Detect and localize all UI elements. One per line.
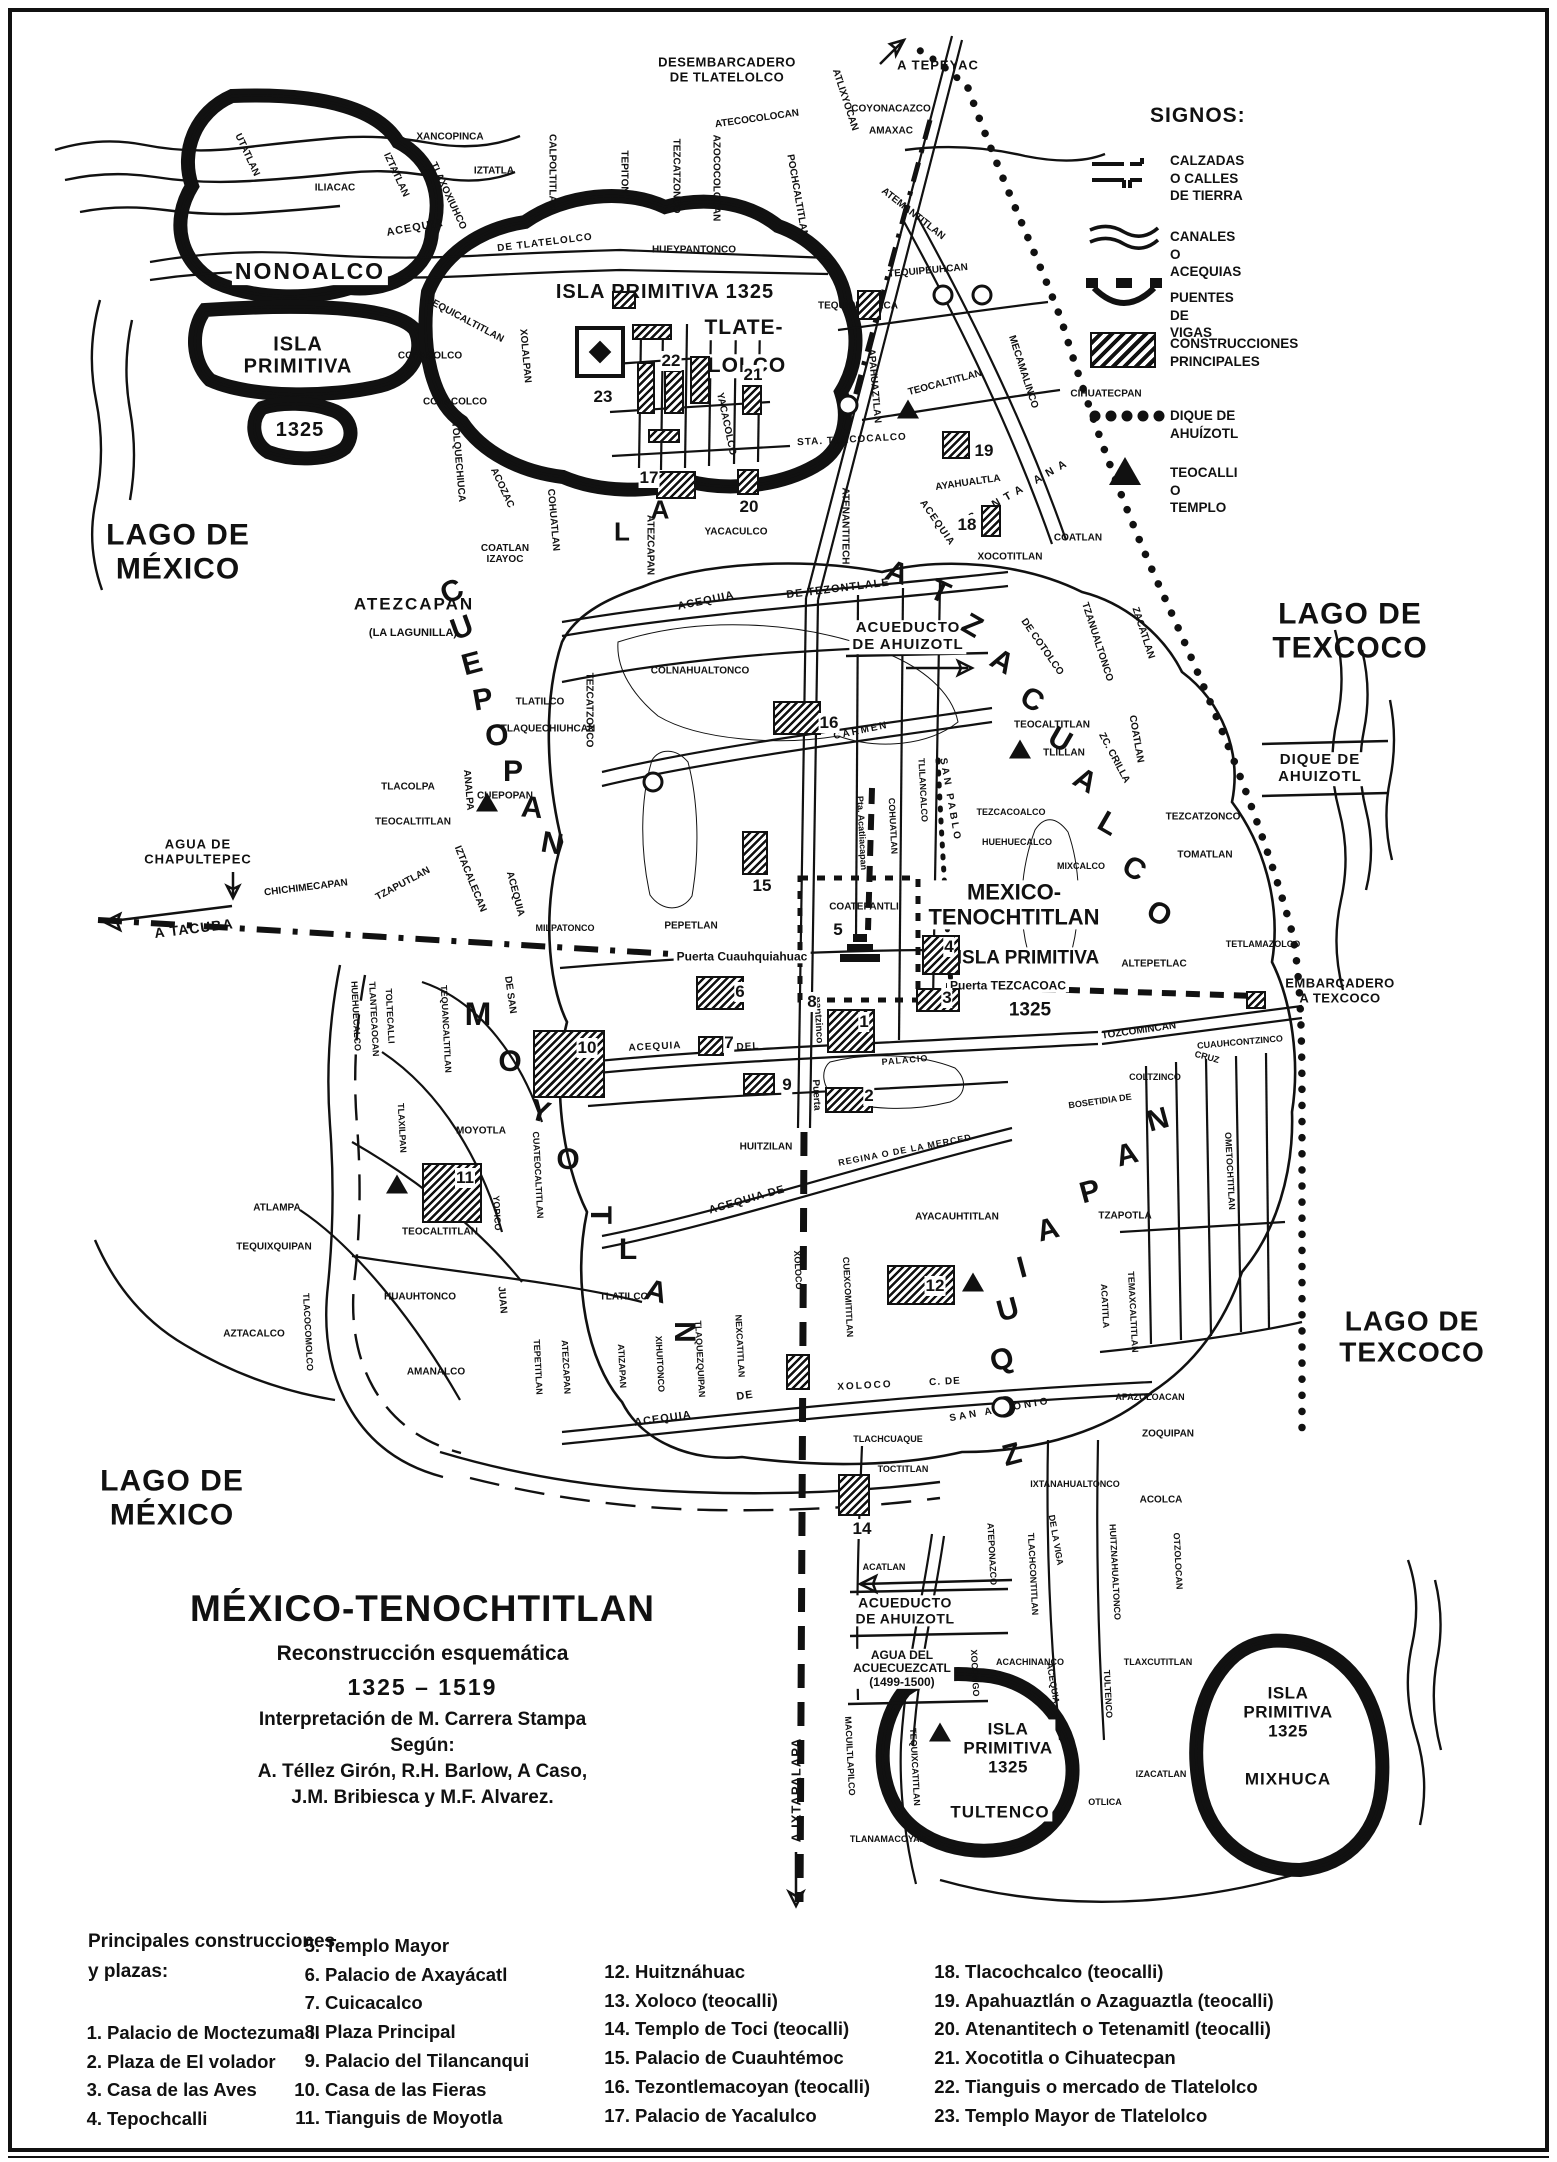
building-number: 14 — [852, 1519, 873, 1539]
construction-legend-label: Palacio de Cuauhtémoc — [635, 2047, 844, 2068]
building-number: 3 — [941, 988, 952, 1008]
circle-marker — [838, 395, 859, 416]
construction-legend-item: 22.Tianguis o mercado de Tlatelolco — [930, 2076, 1258, 2098]
building-number: 8 — [806, 992, 817, 1012]
map-page: A TEPEYACDESEMBARCADERO DE TLATELOLCOATE… — [0, 0, 1557, 2162]
construction-legend-label: Palacio de Moctezuma II — [107, 2022, 320, 2043]
construction-legend-number: 11. — [290, 2107, 320, 2129]
building-number: 15 — [752, 876, 773, 896]
legend-title: SIGNOS: — [1150, 104, 1246, 128]
building-marker — [698, 1036, 724, 1056]
construction-legend-label: Atenantitech o Tetenamitl (teocalli) — [965, 2018, 1271, 2039]
construcciones-icon — [1090, 332, 1156, 368]
construction-legend-item: 5.Templo Mayor — [290, 1935, 449, 1957]
building-marker — [742, 385, 762, 415]
circle-marker — [933, 285, 954, 306]
teocalli-icon — [962, 1273, 984, 1292]
building-marker — [916, 988, 960, 1012]
construction-legend-number: 13. — [600, 1990, 630, 2012]
legend-item-label: TEOCALLI O TEMPLO — [1170, 464, 1238, 517]
building-number: 1 — [858, 1012, 869, 1032]
construction-legend-number: 6. — [290, 1964, 320, 1986]
construction-legend-item: 2.Plaza de El volador — [72, 2051, 276, 2073]
construction-legend-label: Tianguis de Moyotla — [325, 2107, 502, 2128]
teocalli-icon — [929, 1723, 951, 1742]
pyramid-step — [840, 954, 880, 962]
map-subtitle: Reconstrucción esquemática — [150, 1642, 695, 1666]
legend-item-label: DIQUE DE AHUÍZOTL — [1170, 407, 1238, 442]
map-dates: 1325 – 1519 — [150, 1674, 695, 1701]
legend-item-label: CANALES O ACEQUIAS — [1170, 228, 1241, 281]
construction-legend-label: Plaza Principal — [325, 2021, 456, 2042]
legend-item-label: PUENTES DE VIGAS — [1170, 289, 1234, 342]
construction-legend-label: Tezontlemacoyan (teocalli) — [635, 2076, 870, 2097]
construction-legend-item: 19.Apahuaztlán o Azaguaztla (teocalli) — [930, 1990, 1274, 2012]
construction-legend-number: 18. — [930, 1961, 960, 1983]
construction-legend-item: 10.Casa de las Fieras — [290, 2079, 486, 2101]
construction-legend-item: 21.Xocotitla o Cihuatecpan — [930, 2047, 1176, 2069]
building-number: 21 — [743, 365, 764, 385]
building-number: 18 — [957, 515, 978, 535]
map-segun: Según: — [150, 1735, 695, 1757]
construction-legend-number: 14. — [600, 2018, 630, 2040]
construction-legend-number: 8. — [290, 2021, 320, 2043]
construction-legend-item: 20.Atenantitech o Tetenamitl (teocalli) — [930, 2018, 1271, 2040]
building-marker — [786, 1354, 810, 1390]
pyramid-step — [847, 944, 873, 952]
tlatelolco-temple-icon — [575, 326, 625, 378]
building-marker — [656, 471, 696, 499]
construction-legend-label: Templo Mayor — [325, 1935, 449, 1956]
building-number: 7 — [723, 1033, 734, 1053]
construction-legend-item: 17.Palacio de Yacalulco — [600, 2105, 817, 2127]
temple-inner-diamond — [589, 341, 612, 364]
construction-legend-item: 4.Tepochcalli — [72, 2108, 207, 2130]
construction-legend-item: 18.Tlacochcalco (teocalli) — [930, 1961, 1163, 1983]
building-marker — [773, 701, 821, 735]
construction-legend-number: 7. — [290, 1992, 320, 2014]
construction-legend-item: 13.Xoloco (teocalli) — [600, 1990, 778, 2012]
construction-legend-label: Casa de las Aves — [107, 2079, 257, 2100]
construction-legend-number: 21. — [930, 2047, 960, 2069]
construction-legend-number: 20. — [930, 2018, 960, 2040]
construction-legend-item: 1.Palacio de Moctezuma II — [72, 2022, 320, 2044]
construction-legend-number: 19. — [930, 1990, 960, 2012]
legend-item-label: CONSTRUCCIONES PRINCIPALES — [1170, 335, 1298, 370]
construction-legend-number: 23. — [930, 2105, 960, 2127]
construction-legend-label: Xoloco (teocalli) — [635, 1990, 778, 2011]
building-number: 20 — [739, 497, 760, 517]
building-number: 2 — [863, 1086, 874, 1106]
building-number: 17 — [639, 468, 660, 488]
construction-legend-item: 23.Templo Mayor de Tlatelolco — [930, 2105, 1207, 2127]
building-marker — [1246, 991, 1266, 1009]
canales-icon — [1088, 222, 1160, 255]
building-number: 11 — [455, 1168, 475, 1188]
building-marker — [743, 1073, 775, 1095]
map-border-bottom-line — [8, 2156, 1549, 2158]
pyramid-step — [853, 934, 867, 942]
construction-legend-number: 1. — [72, 2022, 102, 2044]
map-authors-2: J.M. Bribiesca y M.F. Alvarez. — [150, 1787, 695, 1809]
legend-item-label: CALZADAS O CALLES DE TIERRA — [1170, 152, 1244, 205]
construction-legend-number: 4. — [72, 2108, 102, 2130]
building-number: 16 — [819, 713, 840, 733]
construction-legend-label: Tepochcalli — [107, 2108, 207, 2129]
building-marker — [838, 1474, 870, 1516]
puentes-icon — [1086, 278, 1162, 319]
construction-legend-item: 9.Palacio del Tilancanqui — [290, 2050, 529, 2072]
construction-legend-label: Cuicacalco — [325, 1992, 423, 2013]
circle-marker — [643, 772, 664, 793]
construction-legend-number: 2. — [72, 2051, 102, 2073]
building-marker — [612, 291, 636, 309]
construction-legend-number: 22. — [930, 2076, 960, 2098]
building-marker — [737, 469, 759, 495]
building-marker — [857, 290, 881, 320]
construction-legend-item: 7.Cuicacalco — [290, 1992, 423, 2014]
construction-legend-item: 11.Tianguis de Moyotla — [290, 2107, 502, 2129]
building-number: 12 — [925, 1276, 946, 1296]
construction-legend-item: 8.Plaza Principal — [290, 2021, 456, 2043]
construction-legend-label: Xocotitla o Cihuatecpan — [965, 2047, 1176, 2068]
calzadas-icon — [1090, 156, 1160, 195]
construction-legend-label: Tlacochcalco (teocalli) — [965, 1961, 1163, 1982]
construction-legend-item: 16.Tezontlemacoyan (teocalli) — [600, 2076, 870, 2098]
construction-legend-number: 15. — [600, 2047, 630, 2069]
construction-legend-label: Palacio de Axayácatl — [325, 1964, 507, 1985]
construction-legend-number: 3. — [72, 2079, 102, 2101]
map-title: MÉXICO-TENOCHTITLAN — [150, 1588, 695, 1630]
building-number: 6 — [734, 982, 745, 1002]
dique-icon — [1088, 408, 1166, 429]
construction-legend-number: 17. — [600, 2105, 630, 2127]
teocalli-icon — [1108, 456, 1142, 491]
teocalli-icon — [386, 1175, 408, 1194]
construction-legend-number: 12. — [600, 1961, 630, 1983]
building-marker — [981, 505, 1001, 537]
building-number: 23 — [593, 387, 614, 407]
circle-marker — [992, 1397, 1013, 1418]
building-number: 10 — [577, 1038, 598, 1058]
building-marker — [690, 356, 710, 404]
construction-legend-label: Palacio del Tilancanqui — [325, 2050, 529, 2071]
construction-legend-item: 14.Templo de Toci (teocalli) — [600, 2018, 849, 2040]
title-block: MÉXICO-TENOCHTITLAN Reconstrucción esque… — [150, 1588, 695, 1809]
building-marker — [637, 362, 655, 414]
construction-legend-label: Templo de Toci (teocalli) — [635, 2018, 849, 2039]
building-marker — [942, 431, 970, 459]
teocalli-icon — [1009, 740, 1031, 759]
construction-legend-heading-2: y plazas: — [88, 1961, 168, 1983]
building-number: 22 — [661, 351, 682, 371]
construction-legend-label: Huitznáhuac — [635, 1961, 745, 1982]
construction-legend-item: 12.Huitznáhuac — [600, 1961, 745, 1983]
construction-legend-number: 9. — [290, 2050, 320, 2072]
construction-legend-label: Plaza de El volador — [107, 2051, 276, 2072]
teocalli-icon — [476, 793, 498, 812]
templo-mayor-pyramid-icon — [840, 932, 880, 962]
teocalli-icon — [897, 400, 919, 419]
markers-layer: 12345678910111214151617181920212223 — [0, 0, 1557, 2162]
map-authors-1: A. Téllez Girón, R.H. Barlow, A Caso, — [150, 1761, 695, 1783]
circle-marker — [972, 285, 993, 306]
building-marker — [742, 831, 768, 875]
building-number: 9 — [781, 1075, 792, 1095]
building-marker — [648, 429, 680, 443]
construction-legend-item: 6.Palacio de Axayácatl — [290, 1964, 507, 1986]
construction-legend-label: Tianguis o mercado de Tlatelolco — [965, 2076, 1258, 2097]
building-marker — [632, 324, 672, 340]
construction-legend-label: Palacio de Yacalulco — [635, 2105, 817, 2126]
construction-legend-item: 3.Casa de las Aves — [72, 2079, 257, 2101]
construction-legend-label: Apahuaztlán o Azaguaztla (teocalli) — [965, 1990, 1274, 2011]
building-marker — [664, 370, 684, 414]
construction-legend-number: 10. — [290, 2079, 320, 2101]
construction-legend-number: 16. — [600, 2076, 630, 2098]
construction-legend-number: 5. — [290, 1935, 320, 1957]
building-number: 4 — [943, 937, 954, 957]
building-number: 19 — [974, 441, 995, 461]
map-interpretation: Interpretación de M. Carrera Stampa — [150, 1709, 695, 1731]
construction-legend-label: Casa de las Fieras — [325, 2079, 486, 2100]
construction-legend-label: Templo Mayor de Tlatelolco — [965, 2105, 1207, 2126]
construction-legend-item: 15.Palacio de Cuauhtémoc — [600, 2047, 844, 2069]
